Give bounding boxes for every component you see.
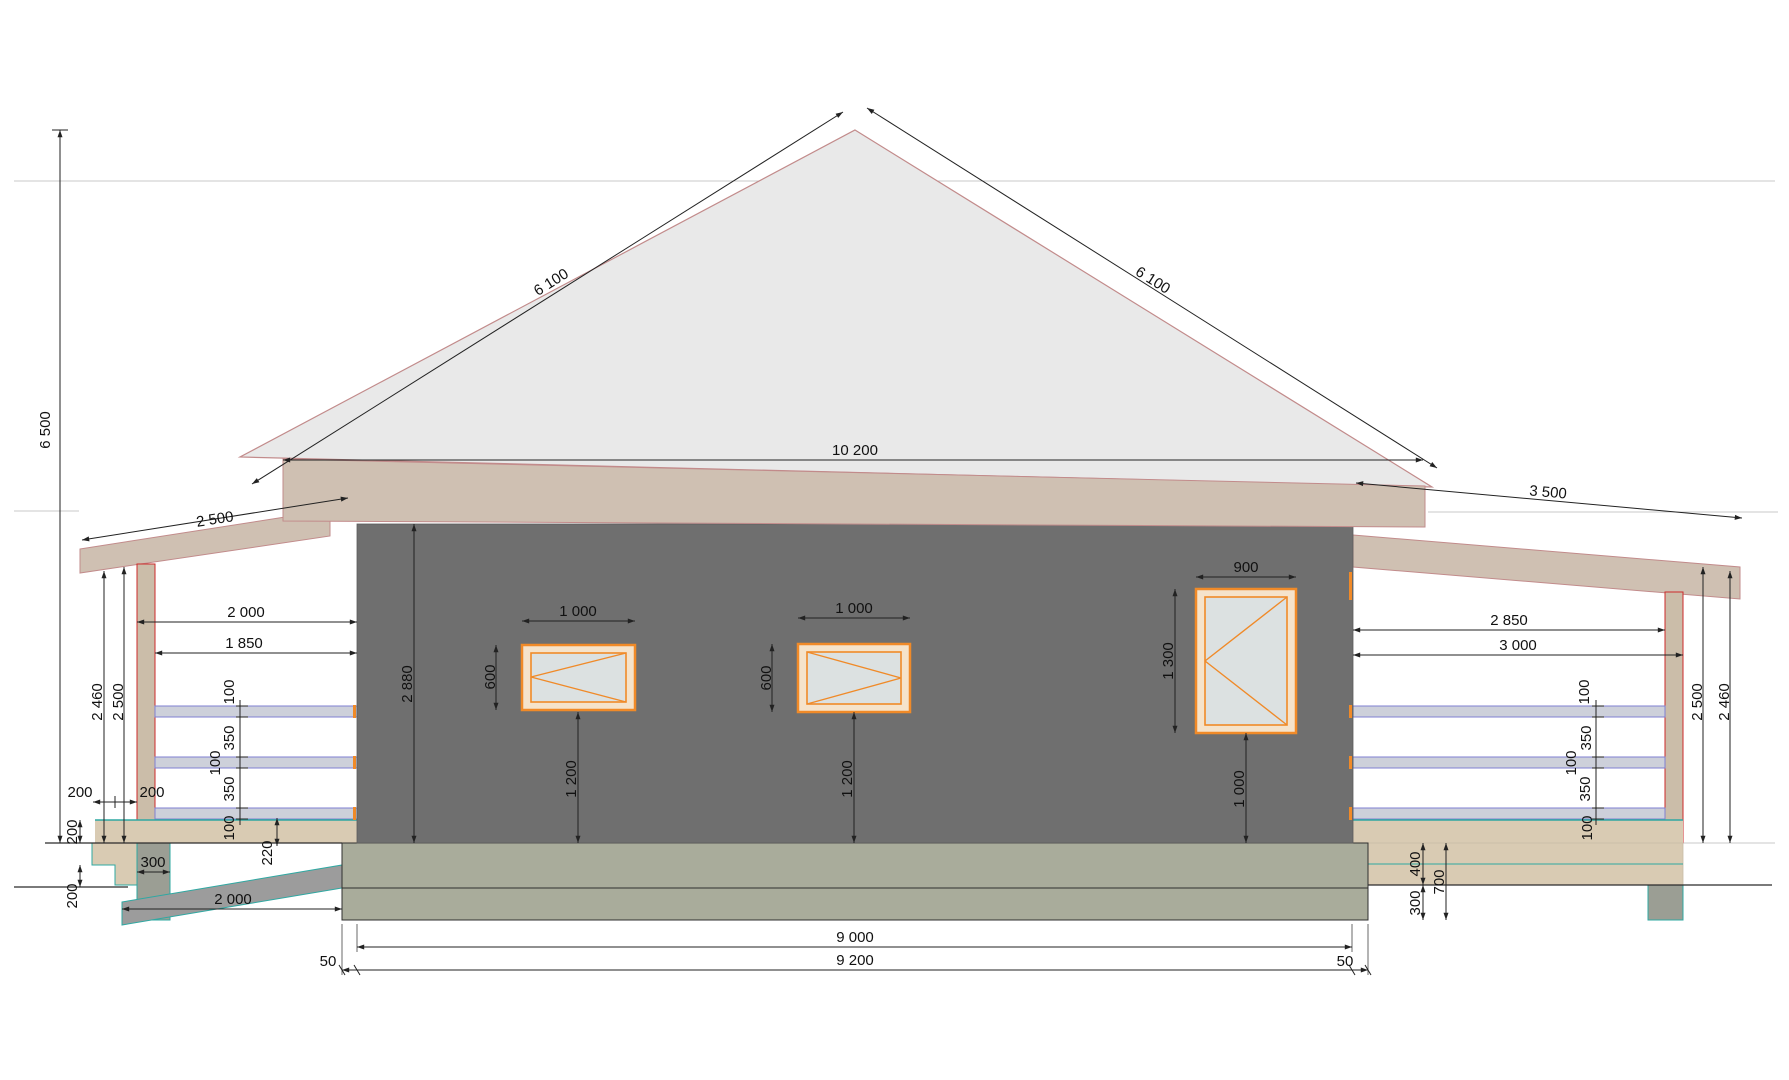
dim-right-total-drop: 700 bbox=[1431, 869, 1448, 894]
right-porch-post bbox=[1665, 592, 1683, 843]
dim-left-clear-width: 2 000 bbox=[227, 604, 265, 621]
dim-w1-width: 1 000 bbox=[559, 603, 597, 620]
dim-right-below-ground: 300 bbox=[1407, 890, 1424, 915]
dim-left-rail-height: 2 460 bbox=[89, 683, 106, 721]
rail-anchor-icon bbox=[353, 756, 356, 769]
window-right bbox=[1196, 589, 1296, 733]
dim-left-chain-100c: 100 bbox=[221, 815, 238, 840]
rail-anchor-icon bbox=[1349, 572, 1352, 600]
elevation-drawing: 6 500 6 100 6 100 10 200 2 500 3 500 2 8… bbox=[0, 0, 1789, 1080]
dim-right-post-span: 3 000 bbox=[1499, 637, 1537, 654]
window-center bbox=[798, 644, 910, 712]
dim-w1-sill: 1 200 bbox=[563, 760, 580, 798]
dim-right-deck-height: 400 bbox=[1407, 851, 1424, 876]
dim-left-offset-a: 200 bbox=[67, 784, 92, 801]
dim-w3-sill: 1 000 bbox=[1231, 770, 1248, 808]
dim-right-chain-100a: 100 bbox=[1576, 679, 1593, 704]
right-porch-deck bbox=[1353, 820, 1683, 843]
dim-left-chain-100a: 100 bbox=[221, 679, 238, 704]
right-post-footing bbox=[1648, 885, 1683, 920]
foundation bbox=[342, 843, 1368, 920]
rail-anchor-icon bbox=[1349, 807, 1352, 820]
left-porch bbox=[14, 510, 357, 925]
dim-left-chain-350b: 350 bbox=[221, 776, 238, 801]
rail-anchor-icon bbox=[1349, 756, 1352, 769]
dim-w2-width: 1 000 bbox=[835, 600, 873, 617]
dim-wall-height: 2 880 bbox=[399, 665, 416, 703]
dim-left-post-height: 2 500 bbox=[110, 683, 127, 721]
elevation-drawing-canvas: 6 500 6 100 6 100 10 200 2 500 3 500 2 8… bbox=[0, 0, 1789, 1080]
dim-right-chain-100b: 100 bbox=[1563, 750, 1580, 775]
dim-right-chain-100c: 100 bbox=[1579, 815, 1596, 840]
dim-ramp-length: 2 000 bbox=[214, 891, 252, 908]
dim-w2-sill: 1 200 bbox=[839, 760, 856, 798]
left-rail-top bbox=[155, 706, 357, 717]
left-step-pier bbox=[92, 843, 137, 885]
dim-total-height: 6 500 bbox=[37, 411, 54, 449]
rail-anchor-icon bbox=[353, 705, 356, 718]
dim-right-clear-width: 2 850 bbox=[1490, 612, 1528, 629]
dim-left-chain-350a: 350 bbox=[221, 725, 238, 750]
left-rail-bottom bbox=[155, 808, 357, 819]
right-rail-bottom bbox=[1353, 808, 1665, 819]
dim-w2-height: 600 bbox=[758, 665, 775, 690]
dim-left-chain-100b: 100 bbox=[207, 750, 224, 775]
main-building bbox=[240, 130, 1432, 920]
dim-right-rail-height: 2 460 bbox=[1716, 683, 1733, 721]
right-porch-roof bbox=[1353, 535, 1740, 599]
dim-base-outer: 9 200 bbox=[836, 952, 874, 969]
dim-left-ground-step: 200 bbox=[64, 883, 81, 908]
dim-left-offset-b: 200 bbox=[139, 784, 164, 801]
rail-anchor-icon bbox=[1349, 705, 1352, 718]
window-left bbox=[522, 645, 635, 710]
dim-left-pier-width: 300 bbox=[140, 854, 165, 871]
right-rail-top bbox=[1353, 706, 1665, 717]
dim-roof-span: 10 200 bbox=[832, 442, 878, 459]
dim-right-post-height: 2 500 bbox=[1689, 683, 1706, 721]
dim-right-chain-350b: 350 bbox=[1577, 776, 1594, 801]
dim-right-porch-roof: 3 500 bbox=[1529, 482, 1568, 502]
right-rail-middle bbox=[1353, 757, 1665, 768]
dim-w1-height: 600 bbox=[482, 664, 499, 689]
left-rail-middle bbox=[155, 757, 357, 768]
dim-base-inner: 9 000 bbox=[836, 929, 874, 946]
roof bbox=[240, 130, 1432, 487]
dim-base-offset-left: 50 bbox=[320, 953, 337, 970]
dim-right-chain-350a: 350 bbox=[1578, 725, 1595, 750]
dim-left-rail-width: 1 850 bbox=[225, 635, 263, 652]
dim-ramp-step: 220 bbox=[259, 840, 276, 865]
dim-left-deck-thickness: 200 bbox=[64, 819, 81, 844]
rail-anchor-icon bbox=[353, 807, 356, 820]
dim-roof-right-slope: 6 100 bbox=[1132, 263, 1173, 297]
dim-w3-height: 1 300 bbox=[1160, 642, 1177, 680]
left-porch-post bbox=[137, 564, 155, 843]
dim-base-offset-right: 50 bbox=[1337, 953, 1354, 970]
dim-w3-width: 900 bbox=[1233, 559, 1258, 576]
